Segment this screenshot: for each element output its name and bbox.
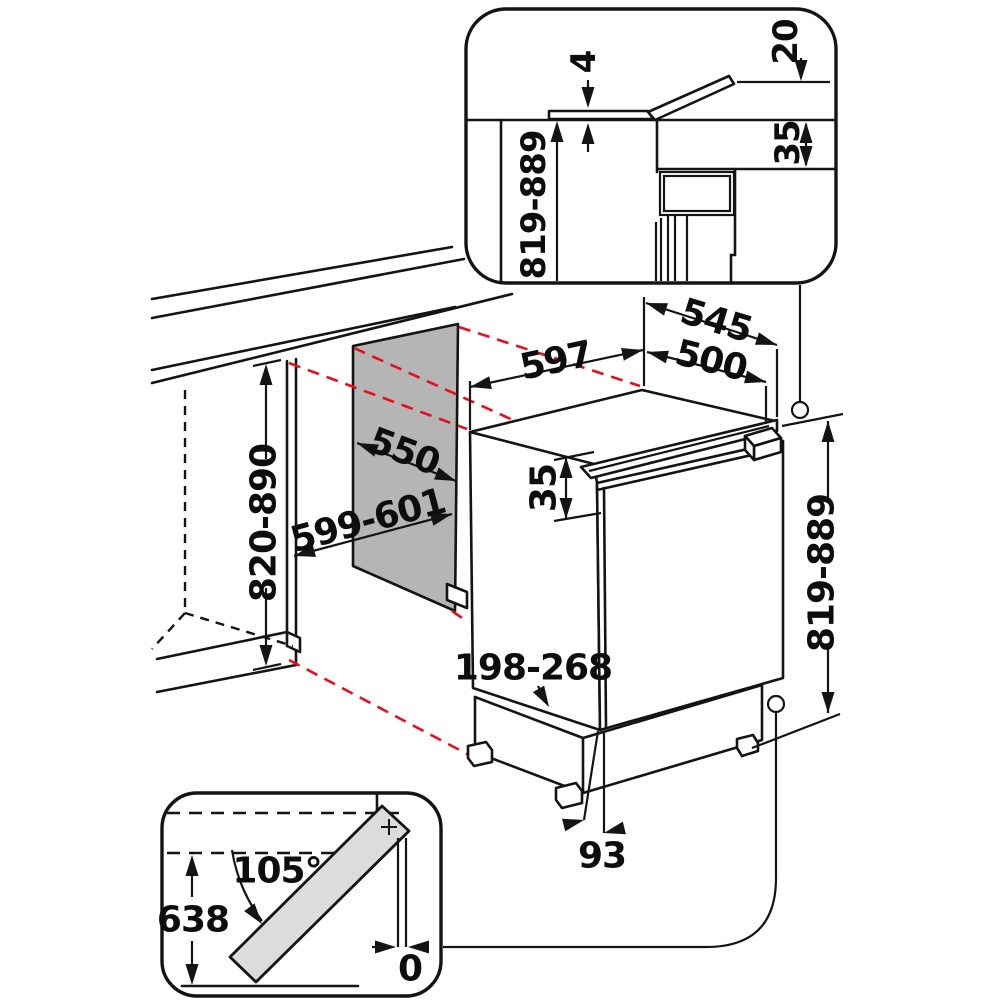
red-alignment-line bbox=[452, 611, 468, 622]
hidden-floor-line-left bbox=[152, 613, 185, 649]
plinth-front-edge bbox=[157, 665, 296, 692]
dim-label-foot-setback: 93 bbox=[578, 836, 626, 877]
installation-diagram: 597 545 500 550 599-601 820-890 bbox=[0, 0, 1000, 1000]
worktop-bottom-edge bbox=[152, 259, 464, 318]
door-top-strip bbox=[549, 111, 653, 119]
extension-tick bbox=[752, 714, 840, 748]
dim-label-niche-height: 820-890 bbox=[244, 444, 285, 602]
dim-label-appliance-height: 819-889 bbox=[802, 494, 843, 652]
dim-label-niche-height-detail: 819-889 bbox=[514, 130, 554, 279]
red-alignment-line bbox=[289, 660, 469, 755]
dim-label-width: 597 bbox=[516, 333, 595, 388]
extension-tick bbox=[253, 360, 281, 366]
callout-circle-door bbox=[768, 696, 784, 712]
fridge-foot bbox=[737, 735, 758, 756]
dim-label-side-clearance: 0 bbox=[398, 949, 422, 990]
dim-label-hinge-offset: 35 bbox=[768, 120, 808, 165]
callout-circle-hinge bbox=[792, 402, 808, 418]
fridge-foot bbox=[556, 783, 582, 808]
top-detail-inset: 4 20 35 819-889 bbox=[466, 9, 836, 283]
dim-label-top-gap: 4 bbox=[564, 50, 604, 73]
dim-label-plinth-height: 198-268 bbox=[454, 648, 612, 689]
worktop-top-edge bbox=[152, 247, 452, 299]
dim-label-flap-rise: 20 bbox=[766, 19, 806, 65]
diagram-page: 597 545 500 550 599-601 820-890 bbox=[0, 0, 1000, 1000]
dim-label-swing-height: 638 bbox=[157, 900, 229, 941]
extension-tick bbox=[782, 414, 843, 426]
left-wall-foot-step bbox=[287, 632, 300, 652]
fridge-foot bbox=[468, 742, 492, 766]
door-swing-inset: 105° 638 0 bbox=[157, 793, 441, 996]
cabinet-niche bbox=[152, 247, 512, 692]
dim-label-opening-angle: 105° bbox=[232, 851, 321, 892]
dim-label-door-offset: 35 bbox=[524, 464, 565, 512]
refrigerator bbox=[468, 390, 783, 808]
